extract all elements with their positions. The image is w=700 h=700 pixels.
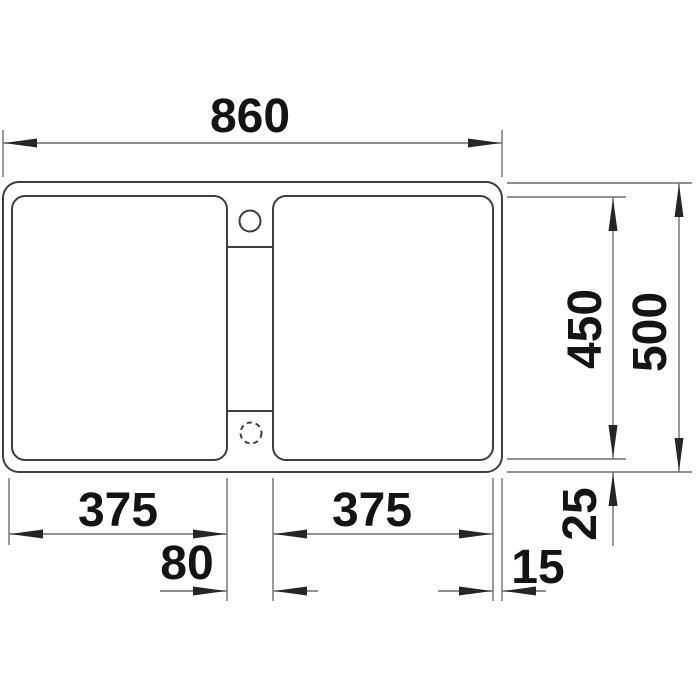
dim-bottom-rim: 25 [554,472,618,546]
arrow-down-icon [609,425,618,458]
dim-overall-width: 860 [3,90,502,177]
left-bowl [12,196,227,460]
overall-width-label: 860 [210,90,290,143]
dimension-drawing-svg: 860 500 450 25 [0,0,700,700]
overall-depth-label: 500 [624,292,677,372]
left-bowl-width-label: 375 [78,484,158,537]
knockout-hole [241,423,262,444]
arrow-up-icon [609,198,618,231]
arrow-left-icon [274,530,307,539]
arrow-left-icon [10,530,43,539]
dim-divider-width: 80 [160,537,318,596]
tap-hole [240,211,261,232]
right-bowl [273,196,493,460]
right-bowl-width-label: 375 [332,484,412,537]
right-rim-label: 15 [511,541,564,594]
sink-outer-edge [3,182,502,472]
arrow-down-icon [675,438,684,471]
bottom-rim-label: 25 [554,487,607,540]
arrow-right-icon [459,530,492,539]
divider-width-label: 80 [160,537,213,590]
dim-right-bowl-width: 375 [273,484,493,539]
dim-bowl-depth: 450 [507,197,626,459]
arrow-left-icon [4,139,37,148]
sink-outline [3,182,502,472]
arrow-right-icon [459,587,492,596]
bowl-depth-label: 450 [559,289,612,369]
arrow-left-icon [274,587,307,596]
arrow-up-icon [675,184,684,217]
dim-left-bowl-width: 375 [9,484,227,539]
arrow-right-icon [468,139,501,148]
arrow-up-icon [609,473,618,506]
sink-spec-drawing: 860 500 450 25 [0,0,700,700]
